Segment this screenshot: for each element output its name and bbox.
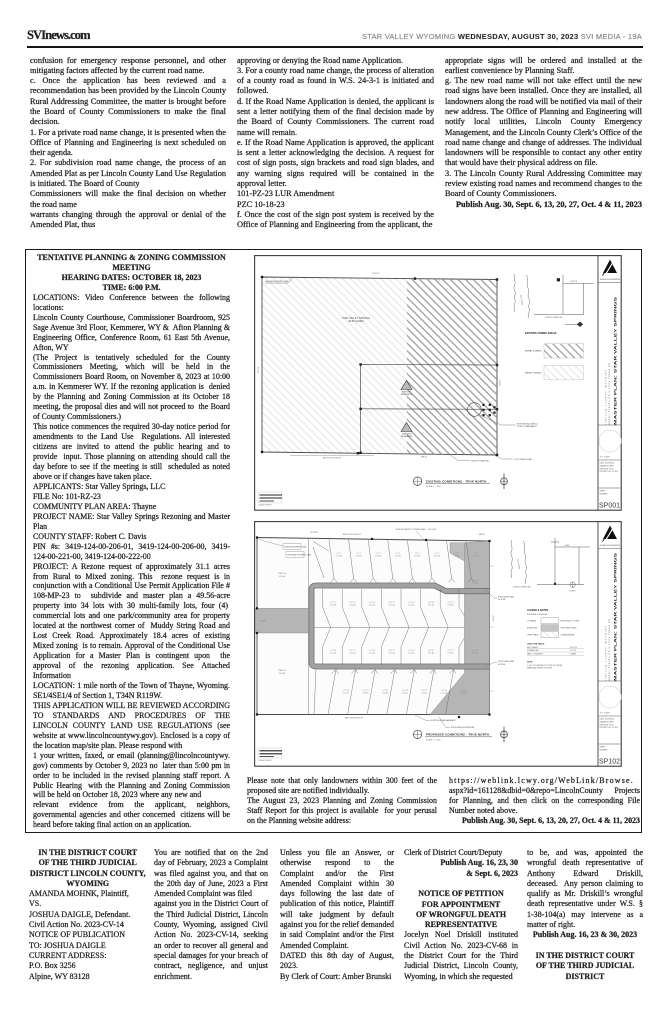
svg-text:0.52 AC: 0.52 AC [330,652,337,655]
svg-text:PROPOSED ROAD: PROPOSED ROAD [498,660,515,663]
svg-text:660.00': 660.00' [258,366,260,373]
svg-text:ALLIANCE ENGINEERING: ALLIANCE ENGINEERING [600,278,621,281]
svg-text:ROW: ROW [261,621,266,623]
svg-text:0.52 AC: 0.52 AC [428,604,435,607]
svg-text:MULTI-FAMILY: MULTI-FAMILY [527,646,539,649]
svg-text:MUDDY STRING RD & LOST CREEK R: MUDDY STRING RD & LOST CREEK RD [609,619,611,681]
svg-text:CHECKED: RCD: CHECKED: RCD [600,468,614,470]
svg-text:0.52 AC: 0.52 AC [402,692,409,695]
svg-text:NORTH: NORTH [570,591,577,593]
svg-text:LAND USE TABLE: LAND USE TABLE [527,643,545,646]
svg-text:0.52 AC: 0.52 AC [389,604,396,607]
svg-text:S89°57'14"W 1319.97': S89°57'14"W 1319.97' [323,458,342,460]
svg-text:0.52 AC: 0.52 AC [472,652,479,655]
svg-text:0.52 AC: 0.52 AC [330,604,337,607]
svg-text:PROJECT NO: 22-104: PROJECT NO: 22-104 [600,471,618,473]
svg-text:0.52 AC: 0.52 AC [453,555,460,558]
svg-text:0.52 AC: 0.52 AC [382,692,389,695]
svg-text:SELLER PROPERTY LINE: SELLER PROPERTY LINE [266,281,290,283]
svg-text:MASTER PLAN: STAR VALLEY SPRIN: MASTER PLAN: STAR VALLEY SPRINGS [614,552,618,681]
svg-text:OPEN SPACE: OPEN SPACE [527,634,539,637]
svg-text:PROPOSED ACCESS ESMT: PROPOSED ACCESS ESMT [451,726,475,729]
svg-text:COMMERCIAL: COMMERCIAL [527,649,538,652]
svg-text:CHECKED: RCD: CHECKED: RCD [600,724,614,726]
svg-text:PROJECT NO: 22-104: PROJECT NO: 22-104 [600,727,618,729]
svg-text:PROPOSED CONDITIONS - TRUE NOR: PROPOSED CONDITIONS - TRUE NORTH [426,733,489,737]
svg-text:3.10 AC: 3.10 AC [279,575,286,578]
svg-text:1 MILE: 1 MILE [564,545,570,547]
svg-text:SP001: SP001 [599,503,620,510]
svg-text:SCALE: 1" = 100': SCALE: 1" = 100' [426,738,441,741]
svg-text:SCALE IN FEET: SCALE IN FEET [259,504,273,507]
svg-text:HWY 89: HWY 89 [571,281,578,283]
svg-text:60' ROW: 60' ROW [498,599,506,601]
svg-text:SALT RIVER: SALT RIVER [516,559,521,570]
svg-text:ROAD ROW: ROAD ROW [527,627,537,630]
svg-text:MIXED ZONING: MIXED ZONING [525,373,541,375]
svg-text:LINCOLN COUNTY, WYOMING: LINCOLN COUNTY, WYOMING [606,626,608,681]
svg-text:SITE AREA: 49.56 ACRES: SITE AREA: 49.56 ACRES [527,613,548,616]
svg-text:NUMBER:: NUMBER: [600,749,609,751]
svg-text:MUDDY STRING RD: MUDDY STRING RD [471,461,489,463]
svg-text:1 AREA: 1 AREA [570,653,577,656]
svg-text:SP102: SP102 [599,759,620,766]
svg-text:3.42 AC: 3.42 AC [279,672,286,675]
svg-text:0.52 AC: 0.52 AC [447,604,454,607]
svg-text:0.52 AC: 0.52 AC [428,652,435,655]
svg-text:RURAL ZONING: RURAL ZONING [525,350,542,353]
svg-text:0.52 AC: 0.52 AC [408,604,415,607]
svg-text:0.52 AC: 0.52 AC [355,555,362,558]
svg-text:0.52 AC: 0.52 AC [343,692,350,695]
svg-text:0.52 AC: 0.52 AC [447,652,454,655]
svg-text:PARK / COMMUNITY: PARK / COMMUNITY [527,653,544,656]
svg-text:PROPOSED ROAD: PROPOSED ROAD [498,596,515,599]
svg-text:0.52 AC: 0.52 AC [408,652,415,655]
svg-text:SALT RIVER: SALT RIVER [519,295,524,306]
svg-text:660.00': 660.00' [493,615,495,621]
svg-text:TRACT B: TRACT B [278,669,287,672]
svg-text:0.52 AC: 0.52 AC [369,652,376,655]
svg-text:0.52 AC: 0.52 AC [349,604,356,607]
svg-text:NOTE:: NOTE: [527,662,533,664]
svg-text:LINCOLN COUNTY, WYOMING: LINCOLN COUNTY, WYOMING [606,370,608,425]
svg-text:LEGEND & NOTES: LEGEND & NOTES [527,609,549,612]
svg-text:PROPOSED LOT LINE: PROPOSED LOT LINE [561,621,580,623]
svg-text:WATER AND SEWER SYSTEMS.: WATER AND SEWER SYSTEMS. [527,666,553,669]
svg-text:DATE: 08/21/2023: DATE: 08/21/2023 [600,462,615,465]
svg-text:S89°57'14"W 1319.97': S89°57'14"W 1319.97' [345,718,364,720]
svg-text:0.52 AC: 0.52 AC [369,604,376,607]
svg-text:LOST CREEK ROAD: LOST CREEK ROAD [514,458,533,461]
svg-text:NUMBER:: NUMBER: [600,493,609,495]
svg-text:P.E. STAMP: P.E. STAMP [600,712,611,715]
svg-text:0.52 AC: 0.52 AC [395,555,402,558]
svg-text:EXISTING CONDITIONS - TRUE NOR: EXISTING CONDITIONS - TRUE NORTH [426,479,486,483]
svg-text:0.52 AC: 0.52 AC [362,692,369,695]
svg-text:PROPOSED ROAD: PROPOSED ROAD [561,627,578,630]
svg-text:0.52 AC: 0.52 AC [441,692,448,695]
svg-text:0.52 AC: 0.52 AC [460,692,467,695]
svg-text:EXISTING PROPERTY LINE: EXISTING PROPERTY LINE [284,546,307,548]
svg-text:UTILITY EASEMENT: UTILITY EASEMENT [517,425,537,428]
svg-text:DRAWN BY: AES: DRAWN BY: AES [600,720,615,723]
svg-text:SHEET: SHEET [600,747,607,749]
svg-text:0.52 AC: 0.52 AC [389,652,396,655]
svg-text:COMMON AREA: COMMON AREA [561,634,575,637]
svg-text:DATE: 08/21/2023: DATE: 08/21/2023 [600,718,615,721]
svg-text:LOT AREA: LOT AREA [527,620,537,623]
svg-text:N89°57'14"E 1319.97': N89°57'14"E 1319.97' [343,534,362,536]
svg-text:0.52 AC: 0.52 AC [421,692,428,695]
svg-text:ALLIANCE ENGINEERING: ALLIANCE ENGINEERING [600,544,621,547]
svg-text:SCALE IN FEET: SCALE IN FEET [259,759,273,762]
svg-text:30 LOTS: 30 LOTS [570,647,578,649]
svg-text:0.52 AC: 0.52 AC [473,555,480,558]
svg-text:DRAWN BY: AES: DRAWN BY: AES [600,464,615,467]
svg-text:RESIDENCE: RESIDENCE [401,436,413,438]
svg-text:60' ROW: 60' ROW [498,664,506,666]
svg-text:0.52 AC: 0.52 AC [349,652,356,655]
svg-text:498.59': 498.59' [479,534,486,536]
svg-text:SHEET: SHEET [600,491,607,493]
svg-text:MUDDY STRING RD & LOST CREEK R: MUDDY STRING RD & LOST CREEK RD [609,363,611,425]
svg-text:MASTER PLAN: STAR VALLEY SPRIN: MASTER PLAN: STAR VALLEY SPRINGS [614,296,618,425]
svg-text:0.52 AC: 0.52 AC [375,555,382,558]
svg-text:49.56 ACRES: 49.56 ACRES [348,320,364,323]
svg-text:EXISTING ZONING AREAS: EXISTING ZONING AREAS [525,332,557,335]
svg-text:EXISTING ACCESS &: EXISTING ACCESS & [517,423,538,426]
svg-text:EXISTING MUDDY STRING ROAD — 6: EXISTING MUDDY STRING ROAD — 60' ROW [396,528,437,531]
svg-text:TRACT A: TRACT A [278,572,287,575]
svg-text:0.52 AC: 0.52 AC [414,555,421,558]
svg-text:438.59': 438.59' [421,457,428,459]
svg-text:EXISTING ROAD EASEMENT: EXISTING ROAD EASEMENT [431,719,456,722]
svg-text:P.E. STAMP: P.E. STAMP [600,456,611,459]
svg-text:0.52 AC: 0.52 AC [434,555,441,558]
svg-text:1. ALL LOTS SERVED BY TOWN OF: 1. ALL LOTS SERVED BY TOWN OF THAYNE [527,664,563,667]
svg-text:60' ROW: 60' ROW [310,532,318,534]
svg-text:330.00': 330.00' [500,379,502,386]
svg-text:SCALE: 1" = 100': SCALE: 1" = 100' [426,485,441,488]
svg-text:RESIDENCE: RESIDENCE [401,394,413,396]
svg-text:1319.97': 1319.97' [372,273,380,275]
svg-text:0.52 AC: 0.52 AC [336,555,343,558]
svg-text:4 LOTS: 4 LOTS [570,650,577,652]
svg-text:PROPOSED PROPERTY LINE: PROPOSED PROPERTY LINE [287,554,311,556]
svg-text:0.52 AC: 0.52 AC [472,582,479,585]
svg-text:MUDDY STRING RD: MUDDY STRING RD [546,317,564,319]
svg-text:MUDDY STRING RD: MUDDY STRING RD [514,587,532,589]
